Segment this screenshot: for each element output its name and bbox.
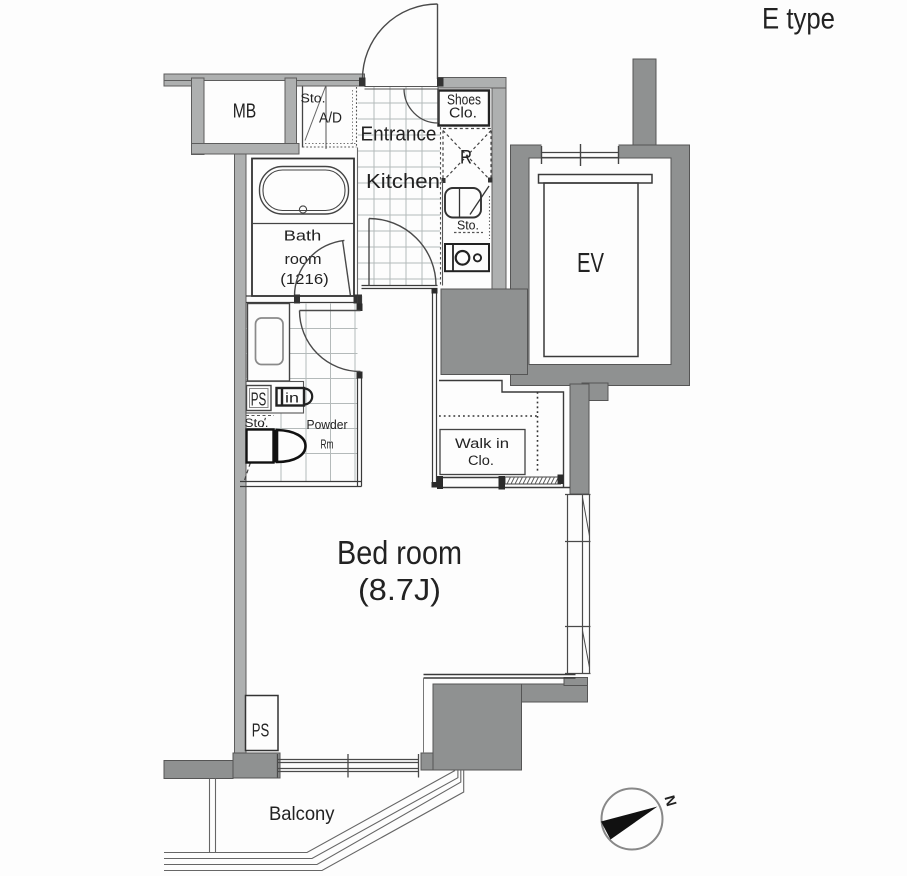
svg-text:Bed room: Bed room [337,534,462,571]
svg-text:A/D: A/D [319,110,342,127]
svg-text:Sto.: Sto. [301,91,326,106]
svg-text:Clo.: Clo. [449,105,477,122]
svg-text:Entrance: Entrance [361,124,437,146]
svg-text:E type: E type [762,3,835,36]
svg-text:Kitchen: Kitchen [366,170,440,193]
svg-text:Sto.: Sto. [245,416,269,430]
svg-text:Sto.: Sto. [457,219,479,233]
svg-text:MB: MB [233,101,257,123]
svg-text:Powder: Powder [307,418,348,432]
svg-text:in: in [285,390,299,406]
svg-text:(8.7J): (8.7J) [358,572,441,607]
svg-text:Rm: Rm [321,438,334,452]
svg-text:Clo.: Clo. [468,453,494,468]
svg-text:PS: PS [251,389,267,410]
svg-text:R: R [460,147,472,169]
svg-text:Walk in: Walk in [455,436,509,451]
svg-text:PS: PS [252,721,270,741]
svg-text:(1216): (1216) [280,272,329,288]
svg-text:Bath: Bath [284,229,322,245]
svg-text:Balcony: Balcony [269,803,335,825]
svg-text:EV: EV [577,247,604,278]
